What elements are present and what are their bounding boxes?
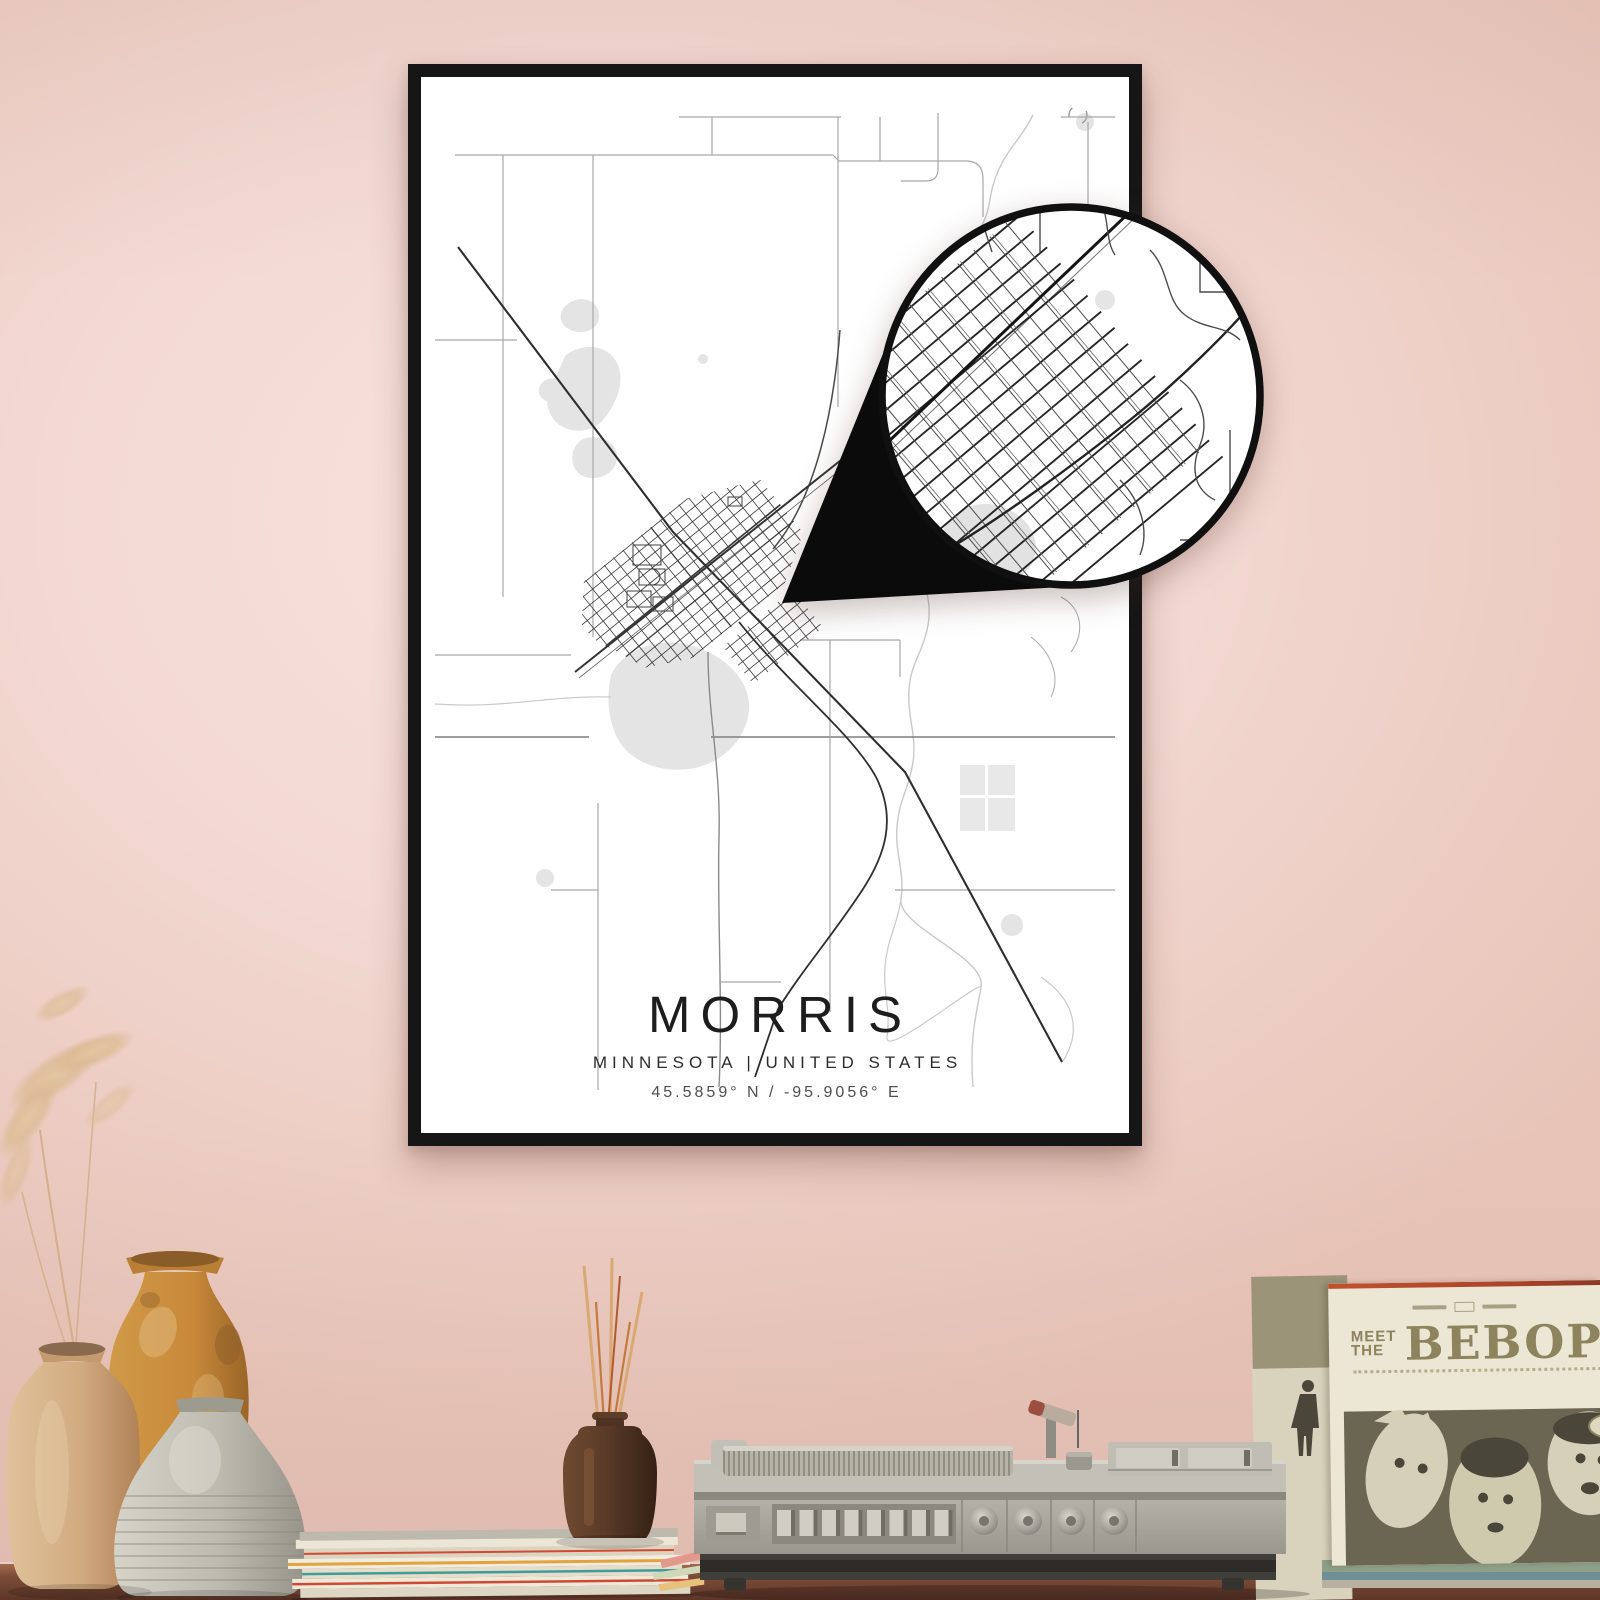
pampas-grass [0, 978, 144, 1352]
face-top-strip [694, 1492, 1286, 1500]
poster-title-block: MORRIS MINNESOTA | UNITED STATES 45.5859… [421, 985, 1129, 1102]
cassette-deck [1108, 1442, 1272, 1476]
poster-city-name: MORRIS [421, 985, 1129, 1044]
preset-buttons [772, 1504, 956, 1544]
player-shadow [690, 1585, 1310, 1600]
poster-region: MINNESOTA | UNITED STATES [421, 1053, 1129, 1073]
player-chassis [700, 1554, 1276, 1590]
reed-diffuser [556, 1258, 664, 1549]
sleeve-word-the: THE [1351, 1344, 1397, 1359]
sleeve-cover-art [1344, 1407, 1600, 1565]
tonearm [1027, 1399, 1092, 1470]
record-player [688, 1388, 1324, 1600]
cover-art-faces [1344, 1407, 1600, 1566]
power-button [706, 1506, 760, 1542]
poster-coordinates: 45.5859° N / -95.9056° E [421, 1084, 1129, 1102]
turntable-platter [711, 1440, 1013, 1476]
sleeve-album-title: BEBOP [1404, 1317, 1600, 1368]
zoom-detail-callout [755, 185, 1275, 620]
record-sleeve-front: MEET THE BEBOP [1328, 1280, 1600, 1566]
sleeve-header-marks [1328, 1299, 1600, 1315]
product-photo-scene: { "poster": { "title": "MORRIS", "subtit… [0, 0, 1600, 1600]
sleeve-title-row: MEET THE BEBOP [1329, 1317, 1600, 1369]
